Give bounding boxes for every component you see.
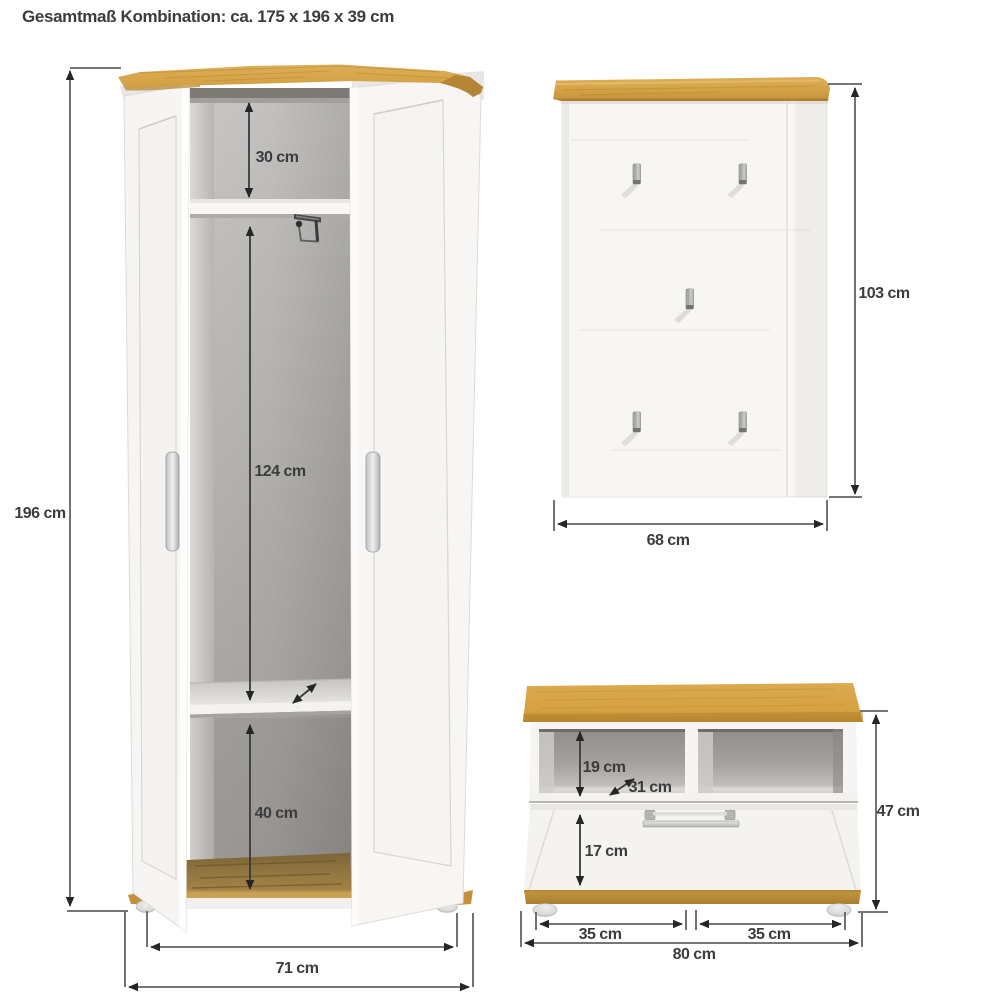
svg-text:Gesamtmaß Kombination: ca. 175: Gesamtmaß Kombination: ca. 175 x 196 x 3… — [22, 7, 394, 26]
svg-text:40 cm: 40 cm — [255, 805, 298, 822]
svg-text:47 cm: 47 cm — [877, 803, 920, 820]
svg-text:124 cm: 124 cm — [254, 463, 306, 480]
svg-text:103 cm: 103 cm — [858, 285, 910, 302]
svg-text:71 cm: 71 cm — [276, 960, 319, 977]
svg-text:31 cm: 31 cm — [629, 779, 672, 796]
svg-text:68 cm: 68 cm — [647, 532, 690, 549]
svg-text:19 cm: 19 cm — [583, 759, 626, 776]
svg-text:35 cm: 35 cm — [748, 926, 791, 943]
svg-text:17 cm: 17 cm — [585, 843, 628, 860]
svg-text:80 cm: 80 cm — [673, 946, 716, 963]
svg-text:30 cm: 30 cm — [256, 149, 299, 166]
svg-text:196 cm: 196 cm — [14, 505, 66, 522]
svg-text:35 cm: 35 cm — [579, 926, 622, 943]
